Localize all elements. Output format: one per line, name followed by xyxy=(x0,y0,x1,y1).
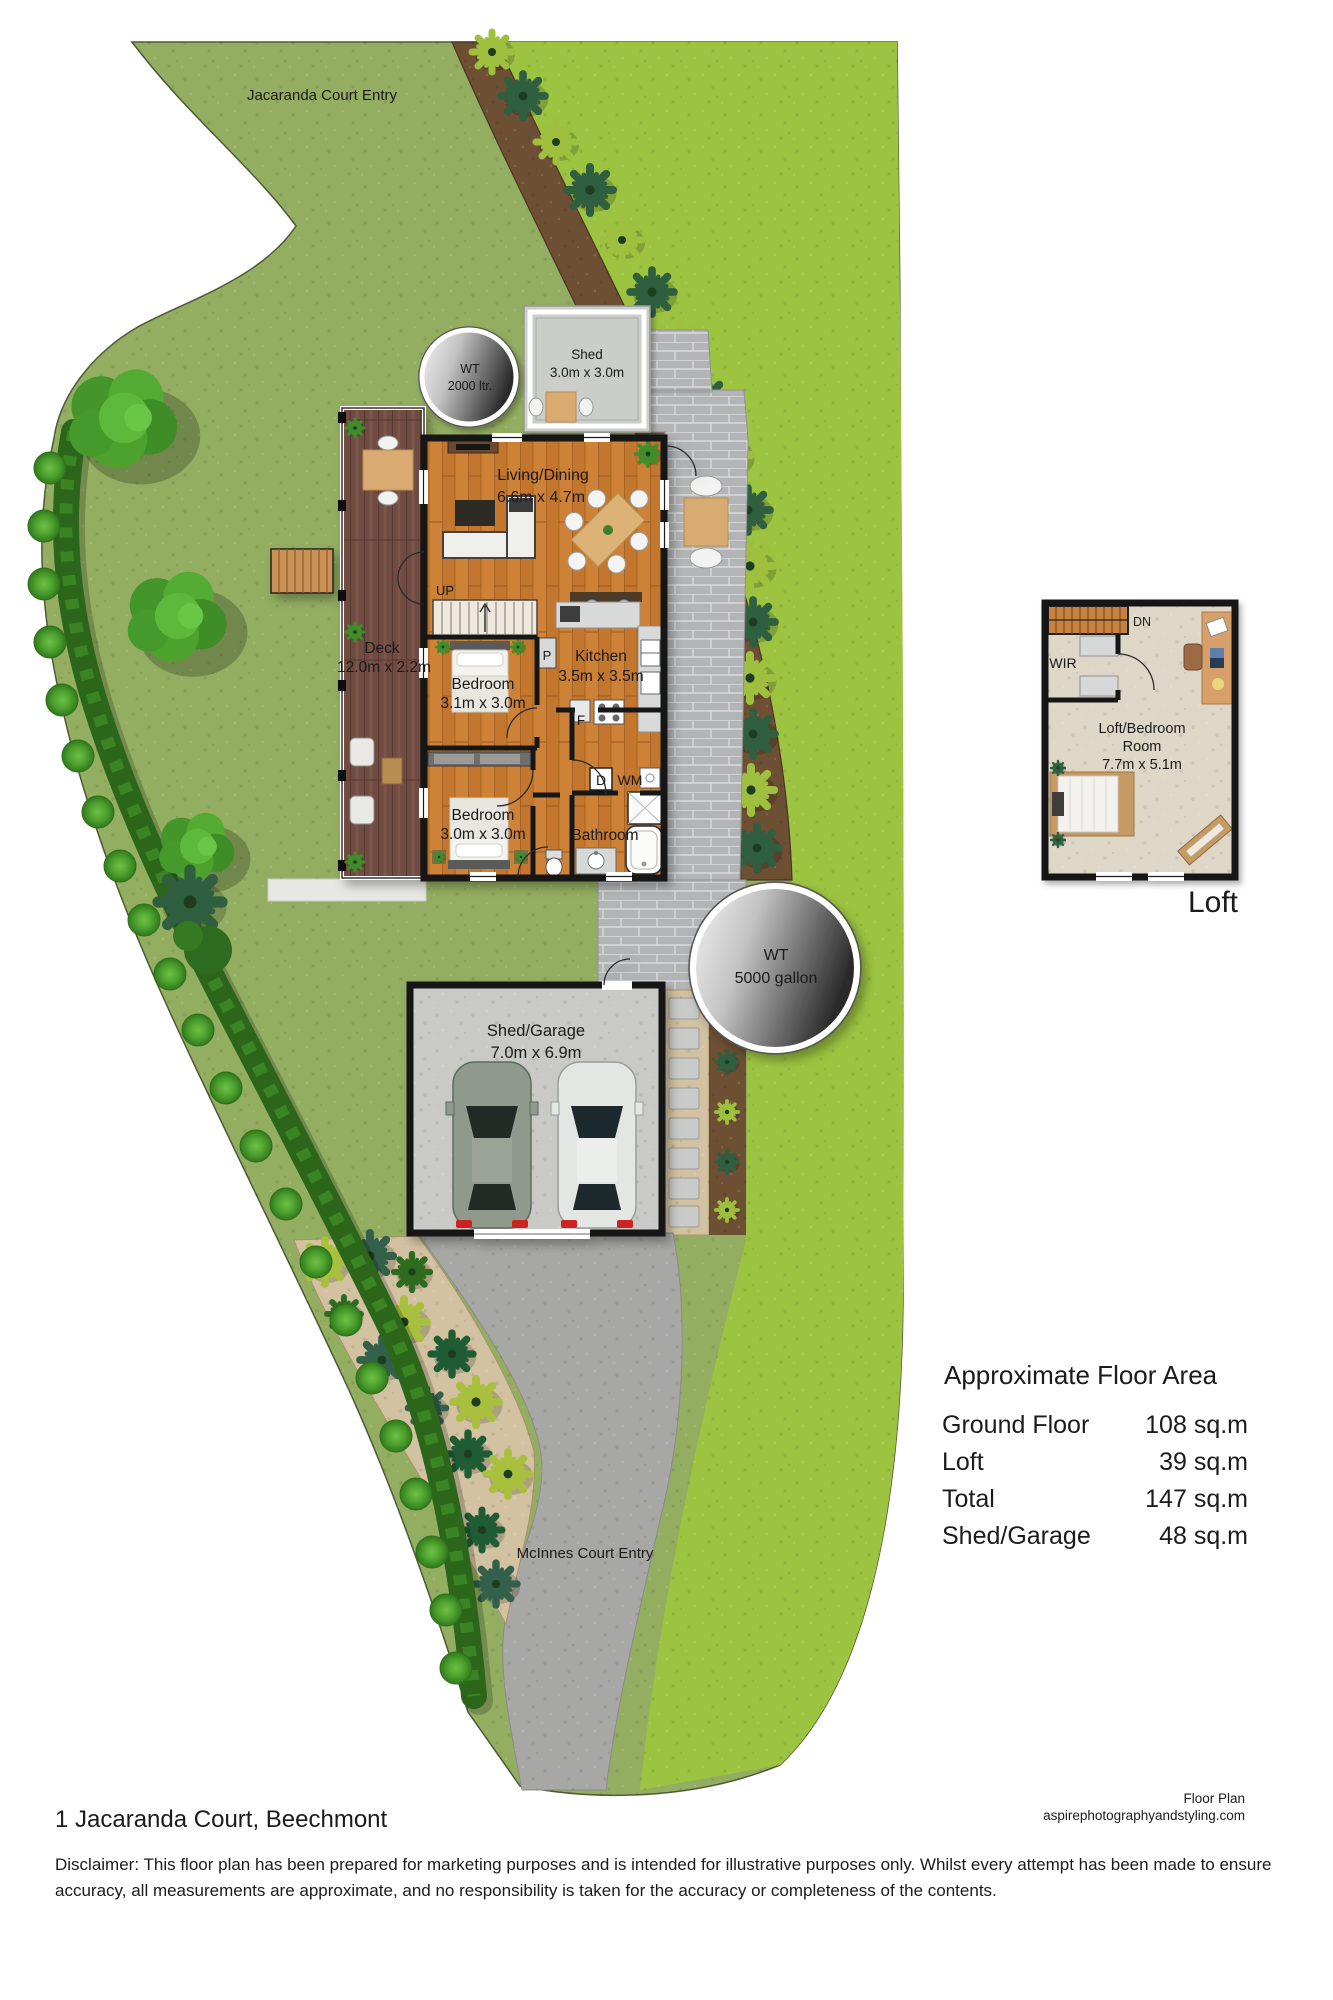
bathroom-label: Bathroom xyxy=(571,827,638,844)
bedroom2-dims: 3.0m x 3.0m xyxy=(440,826,525,843)
floor-area-row-label: Total xyxy=(942,1481,995,1518)
wt5000-label: WT xyxy=(764,947,789,964)
up-marker: UP xyxy=(436,583,454,598)
shed-label: Shed xyxy=(571,347,603,362)
floor-area-row-label: Shed/Garage xyxy=(942,1518,1091,1555)
floor-area-table: Approximate Floor Area Ground Floor 108 … xyxy=(942,1360,1248,1555)
mcinnes-entry-label: McInnes Court Entry xyxy=(517,1545,654,1562)
outdoor-table-patio xyxy=(684,476,728,568)
fridge-marker: F xyxy=(577,713,585,728)
loft-caption: Loft xyxy=(1188,886,1239,919)
floor-area-row-label: Ground Floor xyxy=(942,1407,1089,1444)
walkway xyxy=(268,879,426,901)
wt2000-capacity: 2000 ltr. xyxy=(448,379,492,393)
pantry-marker: P xyxy=(543,648,552,663)
loft-room-dims: 7.7m x 5.1m xyxy=(1102,757,1182,773)
floor-area-title: Approximate Floor Area xyxy=(944,1360,1248,1391)
bedroom2-label: Bedroom xyxy=(452,807,515,824)
stairs-up xyxy=(433,600,537,636)
floor-area-row-value: 147 sq.m xyxy=(1145,1481,1248,1518)
site-plan-svg: Jacaranda Court Entry WT 2000 ltr. Shed … xyxy=(0,0,1333,2000)
floor-area-row-value: 39 sq.m xyxy=(1159,1444,1248,1481)
loft-room-label2: Room xyxy=(1123,739,1162,755)
dn-marker: DN xyxy=(1133,615,1151,629)
floor-plan-page: Jacaranda Court Entry WT 2000 ltr. Shed … xyxy=(0,0,1333,2000)
deck-label: Deck xyxy=(364,640,400,657)
shed-dims: 3.0m x 3.0m xyxy=(550,365,624,380)
living-dims: 6.6m x 4.7m xyxy=(497,489,585,506)
jacaranda-entry-label: Jacaranda Court Entry xyxy=(247,87,398,104)
dryer-marker: D xyxy=(596,772,606,788)
floor-area-row: Shed/Garage 48 sq.m xyxy=(942,1518,1248,1555)
floor-area-row: Loft 39 sq.m xyxy=(942,1444,1248,1481)
credit-line2: aspirephotographyandstyling.com xyxy=(1043,1807,1245,1824)
garage-label: Shed/Garage xyxy=(487,1022,585,1040)
living-label: Living/Dining xyxy=(497,467,589,484)
deck-stairs xyxy=(271,549,333,593)
bedroom1-label: Bedroom xyxy=(452,676,515,693)
floor-area-row: Ground Floor 108 sq.m xyxy=(942,1407,1248,1444)
water-tank-2000 xyxy=(419,327,519,427)
loft-room-label1: Loft/Bedroom xyxy=(1098,721,1185,737)
floor-area-row: Total 147 sq.m xyxy=(942,1481,1248,1518)
bedroom1-dims: 3.1m x 3.0m xyxy=(440,695,525,712)
wt2000-label: WT xyxy=(460,362,480,376)
car-white xyxy=(551,1062,643,1228)
car-green xyxy=(446,1062,538,1228)
loft-bed xyxy=(1050,761,1134,847)
loft-stairs xyxy=(1048,606,1128,634)
credit-block: Floor Plan aspirephotographyandstyling.c… xyxy=(1043,1790,1245,1824)
kitchen-dims: 3.5m x 3.5m xyxy=(558,668,643,685)
kitchen-label: Kitchen xyxy=(575,648,627,665)
deck-dims: 12.0m x 2.2m xyxy=(337,659,431,676)
floor-area-row-value: 108 sq.m xyxy=(1145,1407,1248,1444)
garage-dims: 7.0m x 6.9m xyxy=(491,1044,582,1062)
wm-marker: WM xyxy=(618,772,643,788)
wir-marker: WIR xyxy=(1049,655,1076,671)
garage xyxy=(410,959,662,1239)
credit-line1: Floor Plan xyxy=(1043,1790,1245,1807)
disclaimer-text: Disclaimer: This floor plan has been pre… xyxy=(55,1852,1303,1904)
property-address: 1 Jacaranda Court, Beechmont xyxy=(55,1806,387,1834)
wt5000-capacity: 5000 gallon xyxy=(735,970,818,987)
floor-area-row-value: 48 sq.m xyxy=(1159,1518,1248,1555)
floor-area-row-label: Loft xyxy=(942,1444,984,1481)
